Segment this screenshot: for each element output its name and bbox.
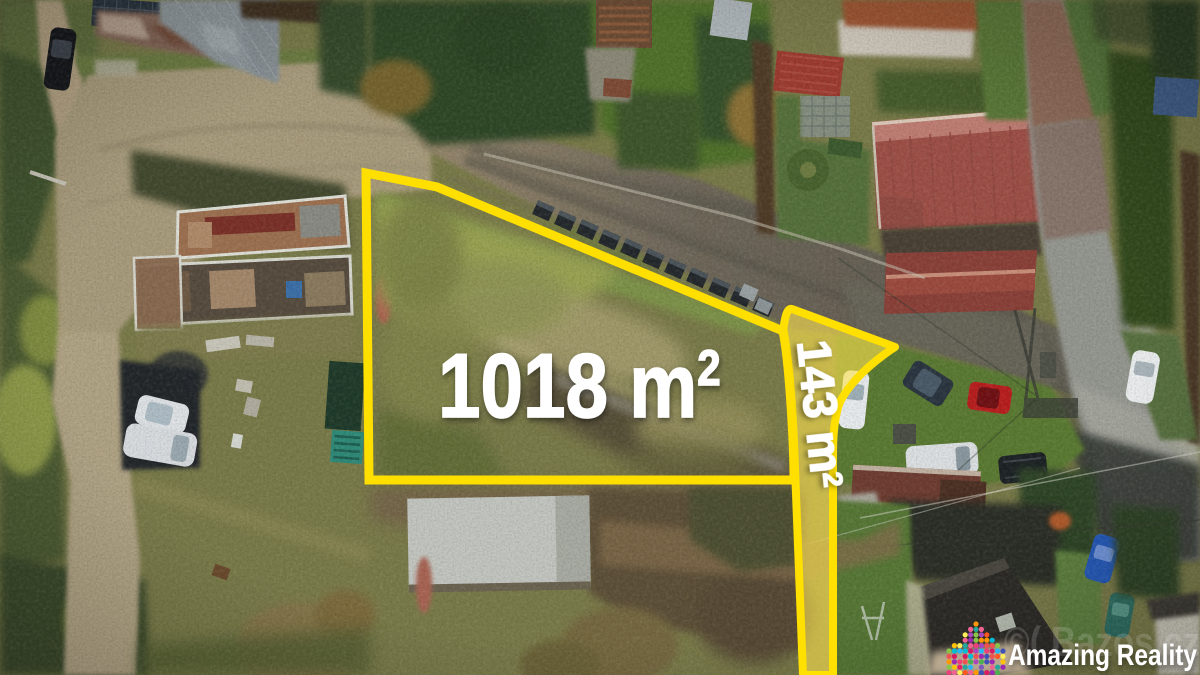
svg-text:1018 m2: 1018 m2 bbox=[438, 335, 721, 437]
svg-text:Amazing Reality: Amazing Reality bbox=[1008, 639, 1197, 672]
